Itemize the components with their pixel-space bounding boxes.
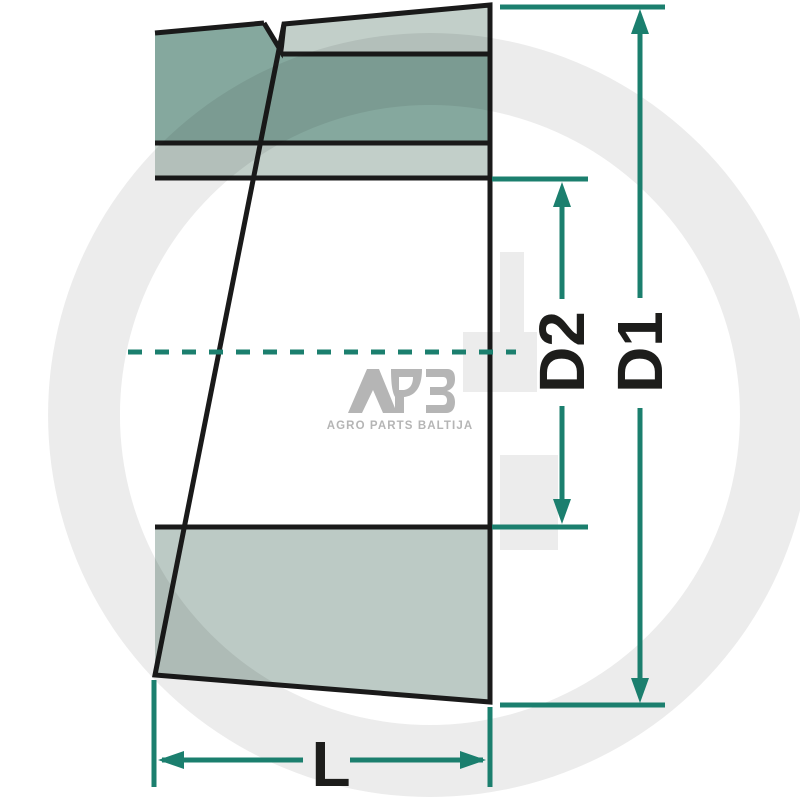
d2-arrow-up-icon	[553, 182, 571, 207]
dimension-label-d2: D2	[526, 311, 598, 393]
technical-drawing: APB AGRO PARTS BALTIJA D1 D2	[0, 0, 800, 800]
page: APB AGRO PARTS BALTIJA D1 D2	[0, 0, 800, 800]
apb-logo-tagline: AGRO PARTS BALTIJA	[327, 420, 474, 432]
d1-arrow-up-icon	[631, 9, 649, 34]
dimension-label-length: L	[311, 728, 350, 800]
l-arrow-left-icon	[158, 751, 184, 769]
dimension-label-d1: D1	[604, 311, 676, 393]
